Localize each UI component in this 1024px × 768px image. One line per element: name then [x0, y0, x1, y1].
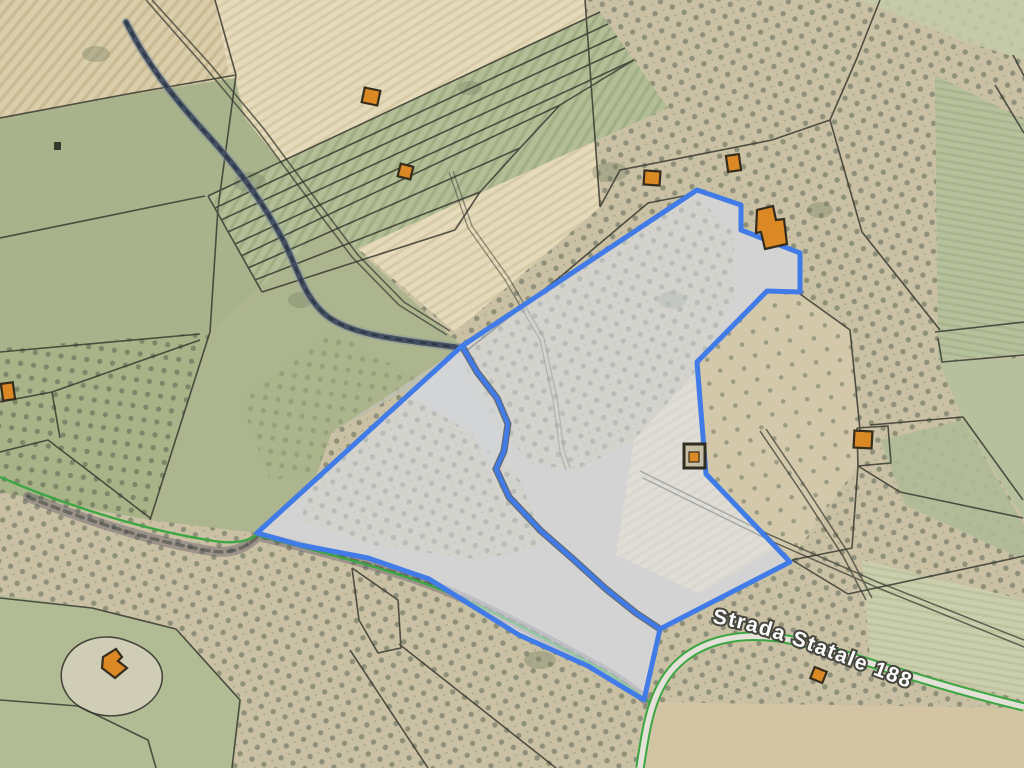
- utility-building-roof: [689, 452, 699, 462]
- map-viewport[interactable]: Strada Statale 188: [0, 0, 1024, 768]
- map-canvas[interactable]: Strada Statale 188: [0, 0, 1024, 768]
- building-4-marker[interactable]: [726, 154, 741, 172]
- utility-building-marker[interactable]: [684, 444, 705, 468]
- building-1-marker[interactable]: [362, 88, 381, 106]
- building-2-marker[interactable]: [398, 164, 414, 180]
- building-6-marker[interactable]: [854, 431, 873, 449]
- building-7-marker[interactable]: [1, 382, 15, 401]
- building-3-marker[interactable]: [644, 170, 661, 185]
